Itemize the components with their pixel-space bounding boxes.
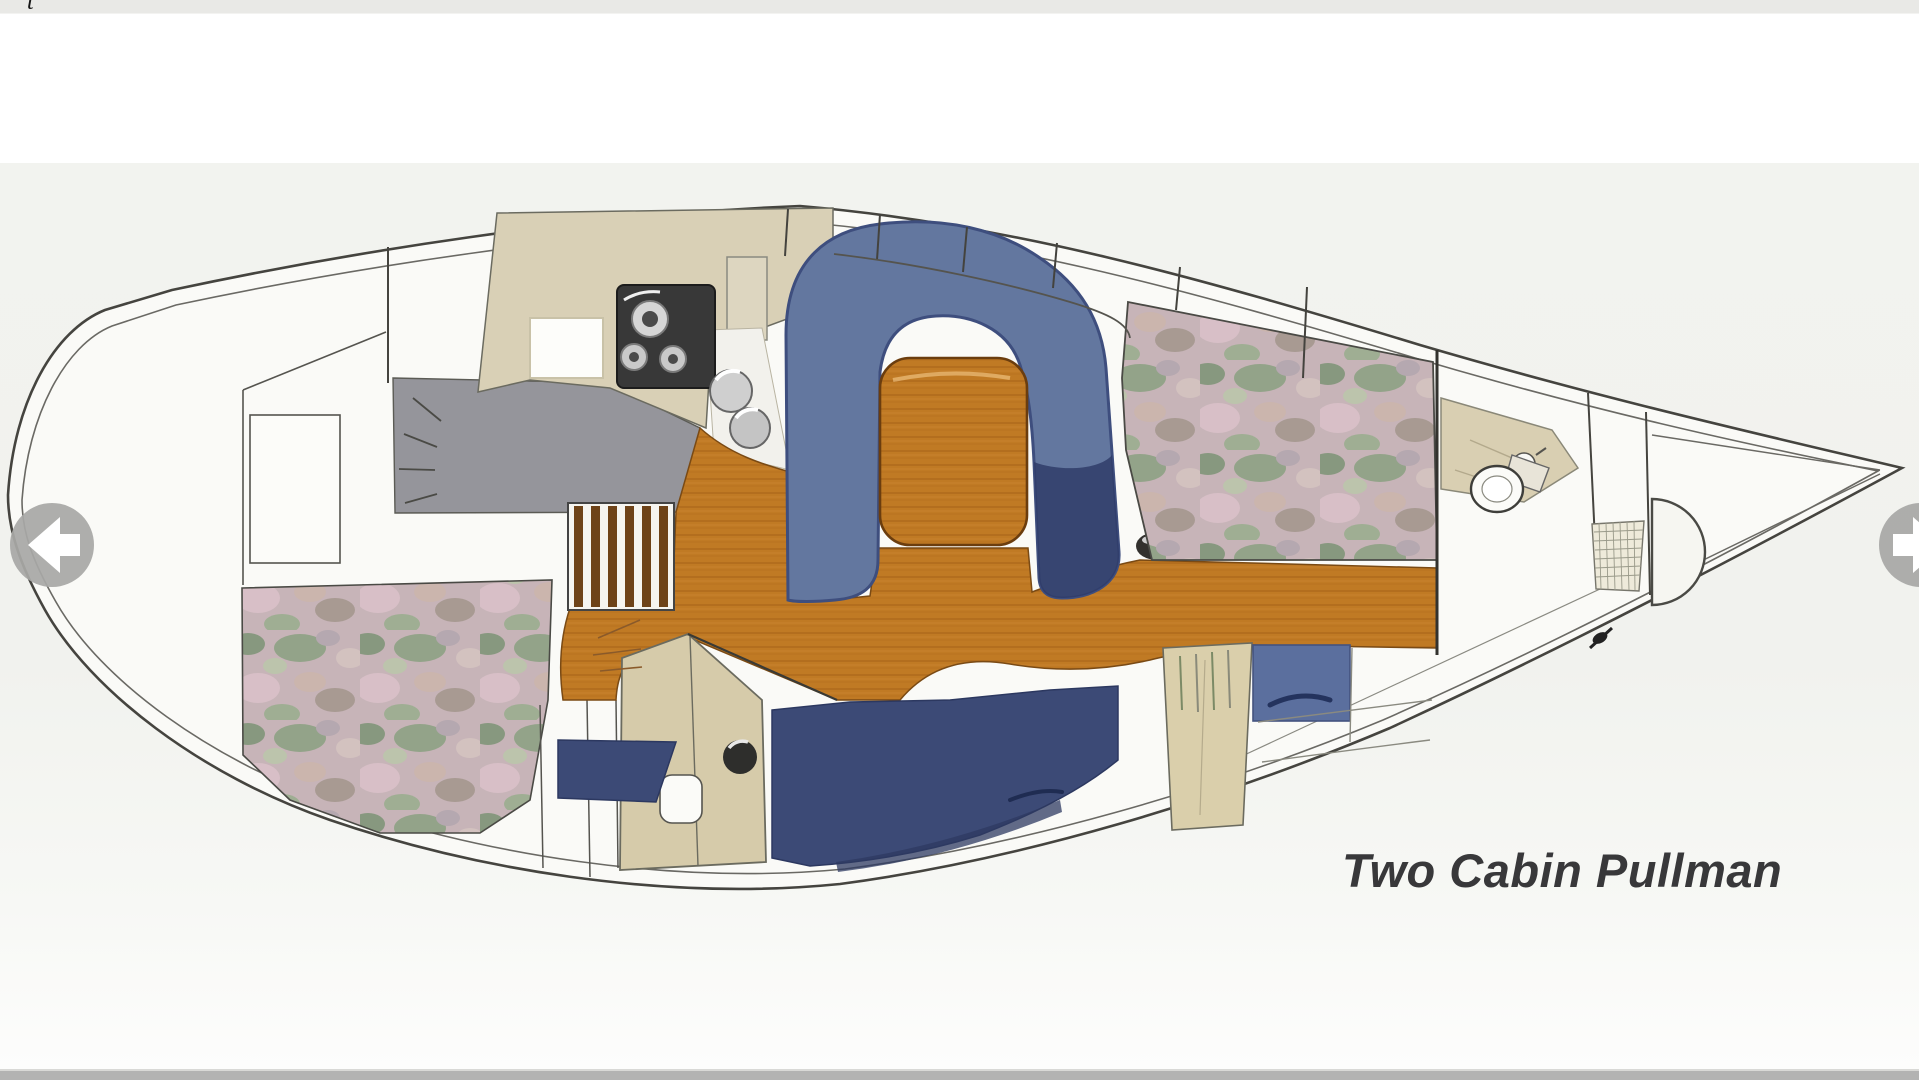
quarter-berth-cushion (1253, 645, 1350, 721)
photo-viewer: Two Cabin Pullman t (0, 0, 1919, 1080)
carousel-next-button[interactable] (1879, 503, 1919, 587)
aft-head-fixture (660, 775, 702, 823)
bottom-bar (0, 1071, 1919, 1080)
carousel-prev-button[interactable] (10, 503, 94, 587)
louvered-door (1163, 643, 1252, 830)
stove (617, 285, 715, 388)
aft-locker (250, 415, 340, 563)
settee-shadow (1034, 455, 1119, 598)
top-bar: t (0, 0, 1919, 14)
aft-berth-cushion (242, 580, 552, 833)
grate (1592, 521, 1644, 591)
cropped-text-fragment: t (27, 0, 34, 14)
counter-cutout (530, 318, 603, 378)
companionway-steps (568, 503, 674, 610)
plan-caption: Two Cabin Pullman (1342, 843, 1782, 898)
aft-head-sink (723, 740, 757, 774)
boat-floor-plan (0, 0, 1919, 1080)
salon-table (880, 358, 1027, 545)
